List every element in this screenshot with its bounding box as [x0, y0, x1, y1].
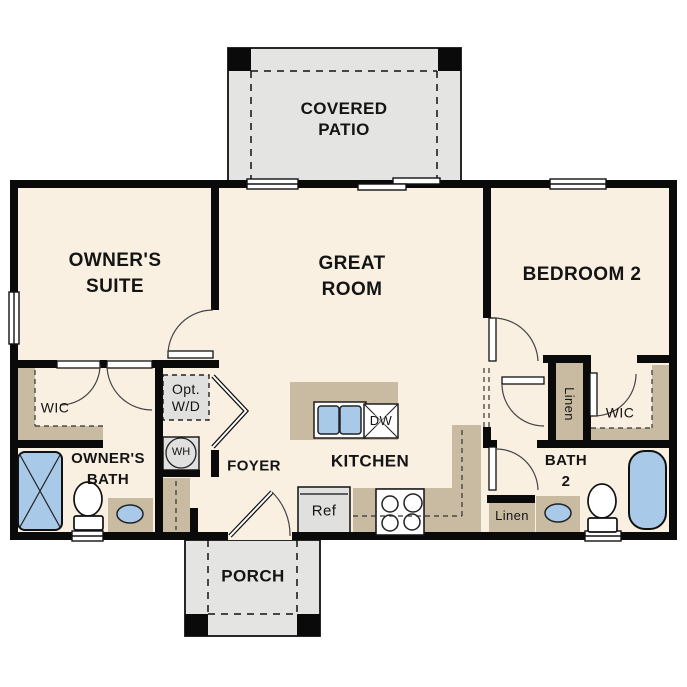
foyer-label: FOYER — [227, 456, 281, 477]
dishwasher-label: DW — [370, 413, 392, 429]
owners-bath-sink — [117, 505, 143, 523]
water-heater-label: WH — [172, 446, 190, 460]
bedroom2-wic-door — [590, 373, 597, 416]
porch-post-right — [297, 614, 320, 636]
coat-closet — [163, 478, 190, 532]
bathtub — [629, 451, 666, 529]
owners-bath-hall-door — [107, 361, 152, 368]
porch-post-left — [185, 614, 208, 636]
patio-slider-panel-inner — [358, 184, 406, 190]
refrigerator-label: Ref — [312, 501, 337, 522]
bath2-sink — [545, 504, 571, 522]
bedroom2-door — [489, 318, 496, 361]
bedroom2-label: BEDROOM 2 — [523, 262, 642, 288]
great-room-label: GREAT ROOM — [318, 251, 385, 303]
front-door-opening — [228, 532, 292, 540]
owners-suite-door — [168, 351, 213, 358]
bedroom2-wic-label: WIC — [606, 404, 634, 422]
opt-wd-label: Opt. W/D — [172, 381, 200, 415]
patio-post-right — [438, 48, 461, 71]
hallway-door — [502, 377, 544, 384]
covered-patio-label: COVERED PATIO — [301, 98, 388, 140]
owners-bath-label: OWNER'S BATH — [71, 448, 145, 490]
floor-plan: COVERED PATIO OWNER'S SUITE GREAT ROOM B… — [0, 0, 687, 687]
owners-suite-label: OWNER'S SUITE — [69, 248, 162, 300]
bedroom2-wic-shelf-bottom — [591, 428, 669, 440]
patio-slider-panel-outer — [393, 178, 440, 184]
owners-wic-shelf-bottom — [18, 426, 103, 440]
bath2-door — [489, 447, 496, 490]
owners-wic-label: WIC — [41, 399, 69, 417]
bath2-label: BATH 2 — [545, 450, 587, 492]
hall-linen-label: Linen — [561, 387, 577, 421]
porch-structure — [185, 540, 320, 636]
porch-label: PORCH — [221, 566, 284, 587]
patio-post-left — [228, 48, 251, 71]
bath-linen-label: Linen — [495, 508, 529, 524]
bath2-toilet — [588, 484, 616, 518]
kitchen-label: KITCHEN — [331, 451, 409, 472]
owners-wic-door — [57, 361, 100, 368]
